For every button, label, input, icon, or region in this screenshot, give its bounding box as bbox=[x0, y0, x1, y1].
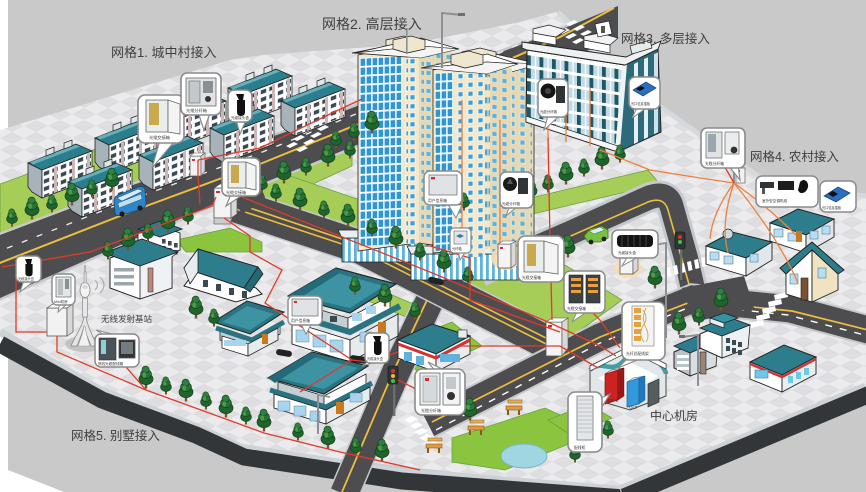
svg-text:光缆分纤箱: 光缆分纤箱 bbox=[540, 109, 558, 114]
svg-text:网格5. 别墅接入: 网格5. 别墅接入 bbox=[71, 428, 160, 443]
svg-text:光缆交接箱: 光缆交接箱 bbox=[149, 134, 170, 141]
svg-text:网格3. 多层接入: 网格3. 多层接入 bbox=[621, 31, 710, 46]
svg-text:光缆分纤箱: 光缆分纤箱 bbox=[705, 161, 724, 166]
svg-text:网格4. 农村接入: 网格4. 农村接入 bbox=[750, 149, 839, 164]
svg-text:光缆分纤箱: 光缆分纤箱 bbox=[421, 407, 441, 413]
svg-text:光缆交接箱: 光缆交接箱 bbox=[226, 189, 246, 195]
svg-text:网格1. 城中村接入: 网格1. 城中村接入 bbox=[111, 45, 216, 60]
svg-text:光缆分纤箱: 光缆分纤箱 bbox=[186, 107, 207, 114]
svg-text:光缆接头盒: 光缆接头盒 bbox=[231, 115, 249, 120]
svg-text:无线发射基站: 无线发射基站 bbox=[101, 314, 153, 324]
svg-text:光缆接头盒: 光缆接头盒 bbox=[18, 276, 35, 281]
svg-text:光缆分纤箱: 光缆分纤箱 bbox=[502, 201, 520, 206]
svg-text:光口信息插板: 光口信息插板 bbox=[822, 205, 842, 210]
svg-text:光缆交接箱: 光缆交接箱 bbox=[522, 275, 541, 280]
svg-text:OLT: OLT bbox=[629, 405, 638, 410]
svg-text:中心机房: 中心机房 bbox=[650, 408, 698, 423]
svg-text:光纤总配线架: 光纤总配线架 bbox=[626, 351, 649, 356]
svg-text:室外型空调机组: 室外型空调机组 bbox=[762, 198, 788, 203]
svg-text:光口信息插板: 光口信息插板 bbox=[631, 101, 651, 106]
svg-text:用户信息箱: 用户信息箱 bbox=[428, 198, 447, 203]
svg-text:分纤箱: 分纤箱 bbox=[452, 246, 462, 251]
svg-text:Mini机房: Mini机房 bbox=[54, 299, 68, 304]
svg-text:光缆交接箱: 光缆交接箱 bbox=[567, 306, 586, 311]
svg-text:光缆接头盒: 光缆接头盒 bbox=[367, 356, 384, 361]
svg-text:馈线光缆配线箱: 馈线光缆配线箱 bbox=[98, 361, 124, 366]
svg-text:网格2. 高层接入: 网格2. 高层接入 bbox=[322, 16, 422, 32]
svg-text:配线柜: 配线柜 bbox=[574, 445, 586, 450]
svg-text:光缆接头盒: 光缆接头盒 bbox=[618, 250, 636, 255]
svg-text:用户信息箱: 用户信息箱 bbox=[291, 318, 310, 323]
